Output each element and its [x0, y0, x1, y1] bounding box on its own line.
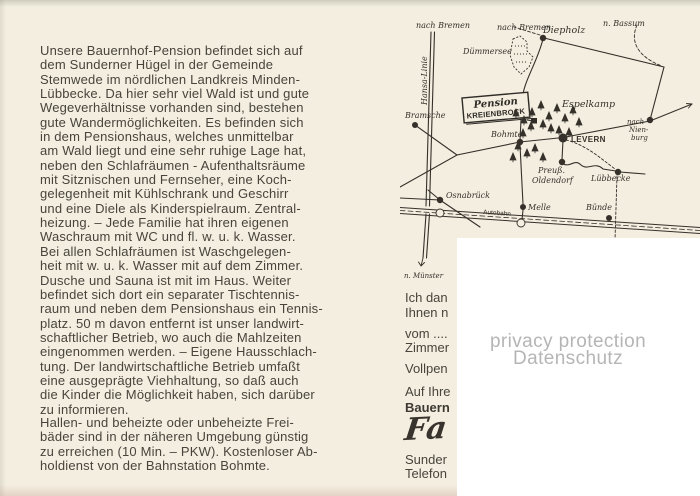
map-label-melle: Melle	[527, 203, 551, 212]
right-column-line: Vollpen	[405, 361, 448, 376]
map-label-osnabr-ck: Osnabrück	[446, 191, 490, 200]
pine-tree-icon	[554, 104, 560, 113]
map-label-diepholz: Diepholz	[542, 25, 586, 36]
privacy-line-2: Datenschutz	[457, 351, 679, 368]
duemmersee-lake	[510, 36, 533, 74]
scan-edge-bottom	[0, 485, 457, 496]
scan-edge-top	[0, 0, 700, 7]
pine-tree-icon	[562, 114, 568, 123]
map-label-n-m-nster: n. Münster	[404, 272, 444, 280]
map-label-nien-: Nien-	[628, 126, 649, 134]
pine-tree-icon	[540, 153, 546, 162]
town-dot-bohmte	[517, 139, 523, 145]
privacy-overlay-text: privacy protection Datenschutz	[457, 334, 679, 367]
map-label-nach-bremen: nach Bremen	[416, 21, 470, 30]
autobahn-interchange	[436, 209, 444, 217]
town-dot-preuss-oldendorf	[559, 159, 565, 165]
pine-tree-icon	[540, 120, 546, 129]
postcard-back: Unsere Bauernhof-Pension befindet sich a…	[0, 0, 700, 496]
pine-tree-icon	[510, 153, 516, 162]
map-roads	[400, 25, 700, 266]
map-label-preu-: Preuß.	[537, 166, 565, 175]
town-dot-osnabrueck	[437, 197, 443, 203]
right-column-line: Ihnen n	[405, 305, 448, 320]
map-label-espelkamp: Espelkamp	[561, 99, 615, 110]
town-dot-nienburg-junction	[647, 117, 653, 123]
right-column-line: Fa	[403, 410, 450, 448]
right-column-line: Auf Ihre	[405, 384, 451, 399]
scan-edge-left	[0, 0, 6, 496]
pine-tree-icon	[556, 126, 562, 135]
map-label-n-bassum: n. Bassum	[603, 19, 645, 28]
map-label-nach: nach	[627, 118, 644, 126]
pine-tree-icon	[524, 149, 530, 158]
map-label-b-nde: Bünde	[585, 203, 612, 212]
town-dot-levern	[559, 134, 568, 143]
map-label-burg: burg	[631, 134, 648, 142]
map-label-l-bbecke: Lübbecke	[590, 174, 631, 183]
map-label-oldendorf: Oldendorf	[532, 176, 575, 185]
right-column-line: Telefon	[405, 466, 447, 481]
map-label-hansa-linie: Hansa-Linie	[420, 56, 429, 106]
map-label-levern: LEVERN	[571, 135, 606, 144]
pension-sign: Pension KREIENBROCK	[462, 92, 531, 124]
privacy-overlay: privacy protection Datenschutz	[457, 238, 700, 496]
autobahn-interchange	[517, 219, 525, 227]
pine-tree-icon	[546, 112, 552, 121]
pine-tree-icon	[538, 101, 544, 110]
pine-tree-icon	[548, 124, 554, 133]
main-description: Unsere Bauernhof-Pension befindet sich a…	[40, 44, 400, 417]
right-column-line: Sunder	[405, 452, 447, 467]
pine-tree-icon	[576, 118, 582, 127]
map-label-bramsche: Bramsche	[404, 111, 446, 120]
secondary-description: Hallen- und beheizte oder unbeheizte Fre…	[40, 416, 400, 473]
right-column-line: vom ....	[405, 326, 448, 341]
town-dot-buende	[606, 215, 612, 221]
town-dot-melle	[520, 204, 526, 210]
map-label-d-mmersee: Dümmersee	[462, 47, 512, 56]
right-column-line: Zimmer	[405, 340, 449, 355]
pine-tree-icon	[532, 144, 538, 153]
town-dot-bramsche	[412, 122, 418, 128]
map-label-bohmte: Bohmte	[490, 130, 523, 139]
pension-location-square	[531, 118, 537, 124]
map-label-autobahn: Autobahn	[483, 209, 512, 218]
